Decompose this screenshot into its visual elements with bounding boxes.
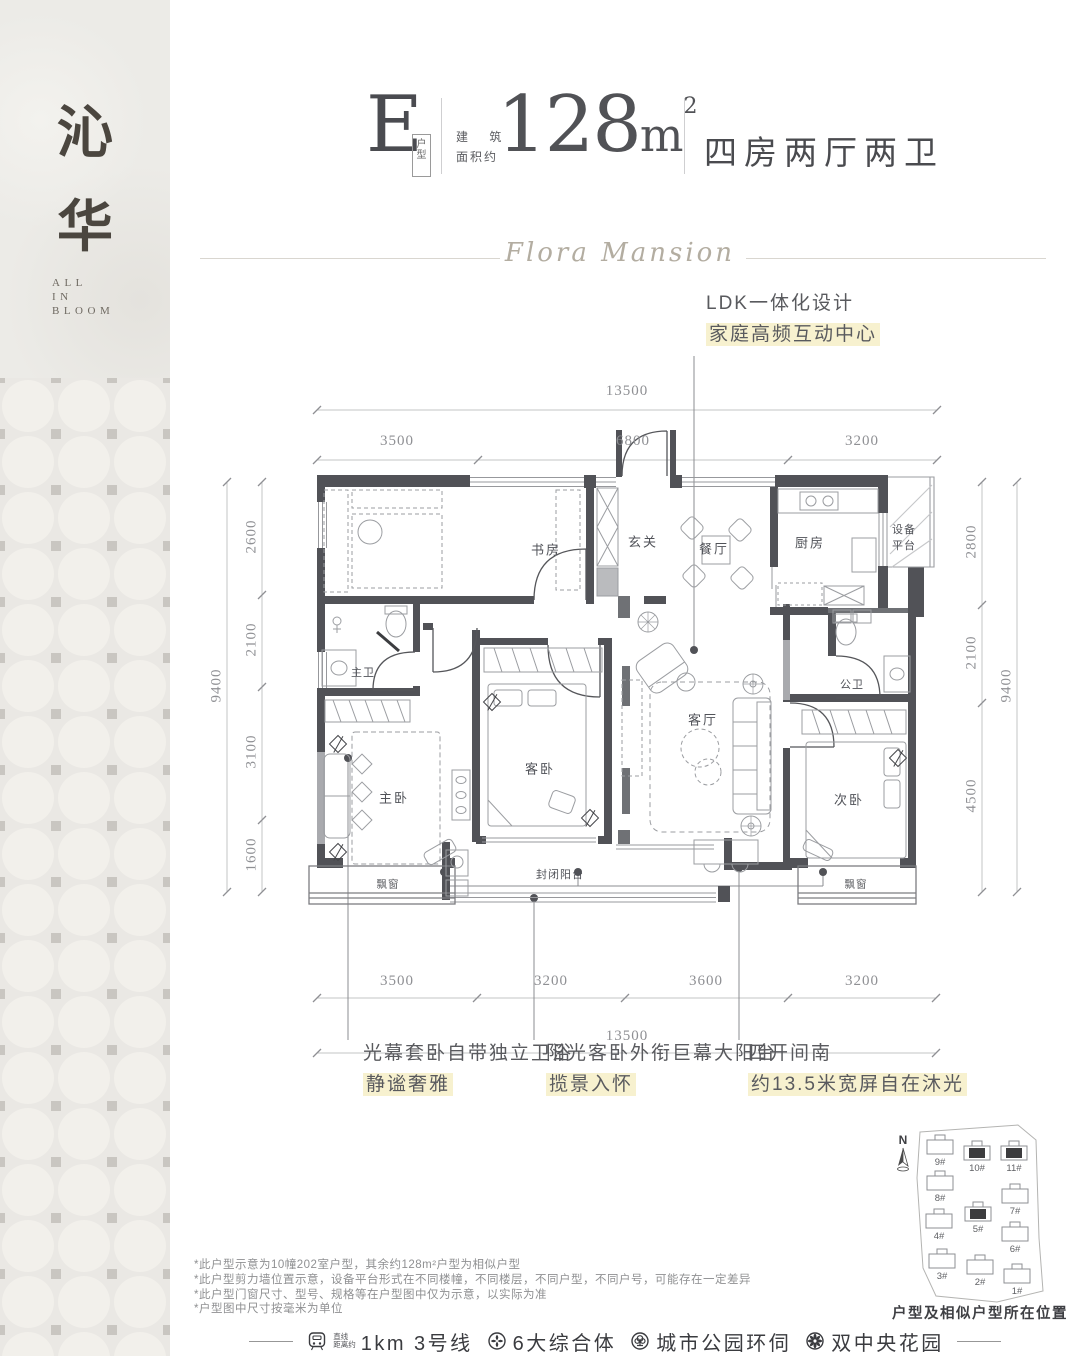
dim-left-seg-3: 3100	[244, 712, 261, 792]
footer-item-label: 6大综合体	[513, 1327, 617, 1356]
room-label-kitchen: 厨房	[795, 533, 825, 552]
svg-text:11#: 11#	[1006, 1163, 1022, 1174]
metro-distance-prefix: 直线 距离约	[333, 1333, 356, 1349]
dim-right-seg-1: 2800	[964, 502, 981, 582]
building-3: 3#	[929, 1249, 955, 1282]
building-11: 11#	[1001, 1141, 1027, 1174]
park-icon	[629, 1330, 651, 1352]
site-plan: N 9# 10# 11# 8# 7# 4# 5# 6# 3# 2# 1#	[878, 1116, 1068, 1311]
brand-tagline: ALL IN BLOOM	[52, 276, 114, 318]
room-label-second-bed: 次卧	[834, 790, 864, 809]
callout-balcony-line-2: 揽景入怀	[546, 1073, 636, 1096]
callout-south-bays: 四开间南 约13.5米宽屏自在沐光	[748, 1038, 967, 1100]
dimension-lines	[227, 410, 1017, 1053]
script-title: Flora Mansion	[455, 238, 785, 268]
garden-icon	[804, 1330, 826, 1352]
svg-text:6#: 6#	[1010, 1244, 1021, 1255]
room-label-study: 书房	[531, 540, 561, 559]
header-divider-1	[441, 98, 442, 174]
dim-bottom-seg-2: 3200	[501, 973, 601, 990]
footer-item-garden: 双中央花园	[804, 1327, 944, 1356]
svg-text:7#: 7#	[1010, 1206, 1021, 1217]
building-8: 8#	[927, 1171, 953, 1204]
room-label-equipment-1: 设备	[892, 521, 916, 537]
svg-text:4#: 4#	[934, 1231, 945, 1242]
room-label-bay-right: 飘窗	[845, 877, 868, 892]
site-buildings: 9# 10# 11# 8# 7# 4# 5# 6# 3# 2# 1#	[926, 1135, 1030, 1297]
note-line: *户型图中尺寸按毫米为单位	[194, 1302, 751, 1317]
area-exponent: 2	[684, 94, 698, 119]
disclaimer-notes: *此户型示意为10幢202室户型，其余约128m²户型为相似户型 *此户型剪力墙…	[194, 1258, 751, 1317]
header-divider-2	[684, 98, 685, 174]
compass-icon: N	[898, 1133, 909, 1171]
amenity-footer: 直线 距离约 1km 3号线 6大综合体	[170, 1326, 1080, 1356]
footer-item-label: 双中央花园	[831, 1327, 944, 1356]
callout-ldk-line-1: LDK一体化设计	[706, 288, 880, 319]
room-label-master-bath: 主卫	[351, 664, 375, 680]
callout-south-line-1: 四开间南	[748, 1038, 967, 1069]
dim-right-seg-3: 4500	[964, 756, 981, 836]
room-label-equipment-2: 平台	[892, 537, 916, 553]
brand-character-1: 沁	[44, 88, 126, 169]
tagline-line: ALL	[52, 276, 114, 290]
footer-item-label: 1km 3号线	[361, 1327, 473, 1356]
area-value: 128m2	[497, 80, 698, 170]
callout-ldk-line-2: 家庭高频互动中心	[706, 323, 880, 346]
dim-right-total: 9400	[999, 646, 1016, 726]
footer-item-metro: 直线 距离约 1km 3号线	[306, 1327, 472, 1356]
script-rule-right	[746, 258, 1046, 259]
area-number: 128	[497, 80, 640, 170]
room-label-dining: 餐厅	[699, 539, 729, 558]
callout-master-suite: 光幕套卧自带独立卫浴 静谧奢雅	[363, 1038, 573, 1100]
dim-left-total: 9400	[209, 646, 226, 726]
note-line: *此户型示意为10幢202室户型，其余约128m²户型为相似户型	[194, 1258, 751, 1273]
dim-left-seg-2: 2100	[244, 600, 261, 680]
svg-text:8#: 8#	[935, 1193, 946, 1204]
dimension-ticks	[223, 406, 1021, 1057]
dim-bottom-seg-4: 3200	[812, 973, 912, 990]
room-label-guest-bed: 客卧	[525, 759, 555, 778]
complex-icon	[486, 1330, 508, 1352]
svg-text:5#: 5#	[973, 1224, 984, 1235]
svg-text:3#: 3#	[937, 1271, 948, 1282]
brand-sidebar: 沁 华 ALL IN BLOOM	[0, 0, 170, 1356]
svg-text:2#: 2#	[975, 1277, 986, 1288]
callout-ldk: LDK一体化设计 家庭高频互动中心	[706, 288, 880, 350]
dim-left-seg-4: 1600	[244, 815, 261, 895]
footer-rule-right	[957, 1341, 1001, 1342]
tagline-line: BLOOM	[52, 304, 114, 318]
building-10: 10#	[964, 1141, 990, 1174]
tagline-line: IN	[52, 290, 114, 304]
callout-master-line-2: 静谧奢雅	[363, 1073, 453, 1096]
room-label-foyer: 玄关	[628, 532, 658, 551]
callout-balcony-line-1: 阳光客卧外衔巨幕大阳台	[546, 1038, 777, 1069]
room-label-balcony: 封闭阳台	[536, 866, 584, 882]
room-label-master-bed: 主卧	[379, 788, 409, 807]
ceiling-symbol	[743, 674, 763, 694]
sidebar-dot-pattern	[0, 378, 170, 1356]
footer-item-label: 城市公园环伺	[656, 1327, 791, 1356]
dim-top-seg-1: 3500	[347, 433, 447, 450]
svg-text:1#: 1#	[1012, 1286, 1023, 1297]
callout-south-line-2: 约13.5米宽屏自在沐光	[748, 1073, 967, 1096]
callout-master-line-1: 光幕套卧自带独立卫浴	[363, 1038, 573, 1069]
footer-item-complex: 6大综合体	[486, 1327, 617, 1356]
building-2: 2#	[967, 1255, 993, 1288]
dim-bottom-seg-3: 3600	[656, 973, 756, 990]
svg-text:10#: 10#	[969, 1163, 986, 1174]
dim-bottom-seg-1: 3500	[347, 973, 447, 990]
room-label-living: 客厅	[688, 710, 718, 729]
building-4: 4#	[926, 1209, 952, 1242]
dim-top-total: 13500	[317, 383, 937, 400]
building-5: 5#	[965, 1202, 991, 1235]
room-label-guest-bath: 公卫	[840, 676, 864, 692]
svg-text:N: N	[899, 1133, 908, 1147]
metro-icon	[306, 1330, 328, 1352]
plan-type-tag: 户型	[412, 134, 431, 177]
svg-text:9#: 9#	[935, 1157, 946, 1168]
footer-rule-left	[249, 1341, 293, 1342]
note-line: *此户型剪力墙位置示意，设备平台形式在不同楼幢，不同楼层，不同户型，不同户号，可…	[194, 1273, 751, 1288]
building-9: 9#	[927, 1135, 953, 1168]
metro-prefix-line: 距离约	[333, 1341, 356, 1349]
callout-balcony: 阳光客卧外衔巨幕大阳台 揽景入怀	[546, 1038, 777, 1100]
building-6: 6#	[1002, 1222, 1028, 1255]
building-1: 1#	[1004, 1264, 1030, 1297]
dim-top-seg-3: 3200	[812, 433, 912, 450]
footer-item-park: 城市公园环伺	[629, 1327, 791, 1356]
brand-character-2: 华	[44, 182, 126, 263]
dim-right-seg-2: 2100	[964, 613, 981, 693]
dim-top-seg-2: 6800	[583, 433, 683, 450]
floorplan-page: 沁 华 ALL IN BLOOM E 户型 建 筑 面积约 128m2 四房两厅…	[0, 0, 1080, 1356]
layout-summary: 四房两厅两卫	[704, 126, 944, 174]
building-7: 7#	[1002, 1184, 1028, 1217]
note-line: *此户型门窗尺寸、型号、规格等在户型图中仅为示意，以实际为准	[194, 1288, 751, 1303]
dim-left-seg-1: 2600	[244, 497, 261, 577]
room-label-bay-left: 飘窗	[377, 877, 400, 892]
area-unit: m	[640, 108, 684, 162]
